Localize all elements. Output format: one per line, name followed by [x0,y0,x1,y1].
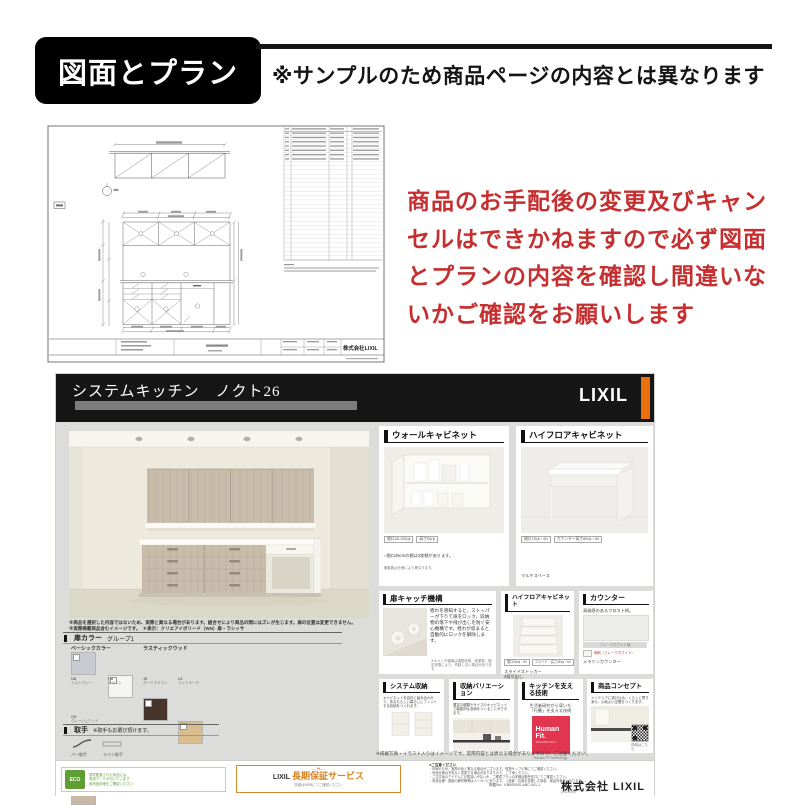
door-color-group: グループ1 [107,634,134,643]
swatch-label: H8 ホワイト [108,676,122,686]
storage-body: キャビネットを自在に組み合わせて、あなたらしい暮らしにフィットする収納をつくれま… [383,696,440,709]
group-basic-label: ベーシックカラー [71,645,111,652]
reference-label [114,189,119,191]
swatch-dark-brown [143,698,168,721]
panel-highfloor-small: ハイフロアキャビネット 間口45㎝・60 スライド・高さ45㎝・60 スライドス… [501,591,574,674]
doc-number: 掲載No：KB000000-ABC-001-1 [489,783,540,788]
size-tag: 間口75㎝・80 [521,536,551,544]
door-catch-note: ※キャッチ機構は振動状態、荷重物、固定状態により、作動しない場合があります。 [431,659,492,672]
warning-line: とプランの内容を確認し間違いな [407,258,779,296]
warning-line: 商品のお手配後の変更及びキャン [407,183,779,221]
swatch-name: グレージュウッド [71,719,99,724]
size-tag: 高さ50㎝ [416,536,438,544]
size-tag: カウンター高さ85㎝・80 [554,536,603,544]
swatch-label: N8 ミストグレー [71,676,92,686]
page-title: 図面とプラン [35,37,261,104]
panel-counter: カウンター 高級感のあるフロスト柄。 フレークホワイト柄 柄例（フレークホワイト… [579,591,653,674]
panel-wall-cabinet: ウォールキャビネット 間口45-105㎝ 高さ50㎝ ○間口45cmの棚は2枚棚… [379,426,509,586]
drawing-company: 株式会社LIXIL [343,344,378,352]
panel-storage-variation: 収納バリエーション 豊富な種類やサイズのキャビネットで機能的な収納をつくることが… [449,679,514,753]
eco-line: 各商品詳細をご確認ください [89,782,133,786]
eco-badge-box: ECO 環境配慮された商品には 専用マークが付いています 各商品詳細をご確認くだ… [61,767,226,792]
swatch-name: ダークブラウン [143,681,168,686]
panel-technology: キッチンを支える技術 生活者研究から導いた 「行動」を支える技術 Human F… [518,679,583,753]
panel-title: ハイフロアキャビネット [505,594,570,612]
counter-body: 高級感のあるフロスト柄。 [583,608,649,613]
handle-option-1: バー取手 [71,752,87,758]
panel-system-storage: システム収納 キャビネットを自在に組み合わせて、あなたらしい暮らしにフィットする… [379,679,444,753]
panel-concept: 商品コンセプト インテリアに溶け込み、くらしに寄り添う。心地よい空間をつくります… [587,679,653,753]
humanfit-logo: Human Fit. TECHNOLOGY [532,716,570,754]
slide-stocker-photo [513,615,563,657]
door-color-heading: 扉カラー [74,633,102,643]
highfloor-photo [521,447,648,533]
section-marker [64,727,67,734]
handle-options-graphic [71,737,131,751]
handle-heading: 取手 [74,725,88,735]
line-handle-icon [103,742,121,746]
highfloor-caption: マルチスペース [521,573,648,578]
wall-cabinet-tags: 間口45-105㎝ 高さ50㎝ [384,536,504,544]
slide-stocker-tags: 間口45㎝・60 スライド・高さ45㎝・60 [504,659,571,667]
variation-photo [453,718,510,754]
sample-disclaimer: ※サンプルのため商品ページの内容とは異なります [272,60,765,90]
door-catch-body: 揺れを感知すると、ストッパーが下りて扉をロック。収納物の落下や飛び出しを防ぐ安心… [430,608,492,656]
render-note-line: ※実際掲載商品含むイメージです。 ＊表示：クリエアイボリード（WN）扉・ラシッサ [69,626,381,632]
catalog-body: ※商品を選択した内容ではないため、実際と異なる場合があります。組合せにより商品の… [56,422,654,760]
technology-line: 生活者研究から導いた [522,703,579,708]
section-marker [64,635,67,642]
panel-title: カウンター [583,594,649,605]
panel-title: システム収納 [383,682,440,693]
door-catch-photo [383,608,427,656]
highfloor-tags: 間口75㎝・80 カウンター高さ85㎝・80 [521,536,648,544]
swatch-checkbox [73,654,80,661]
panel-title: キッチンを支える技術 [522,682,579,700]
wall-cabinet-photo [384,447,504,533]
swatch-checkbox [145,700,152,707]
swatch-label: G8 グレージュウッド [71,714,99,724]
counter-chip [583,650,592,657]
qr-code [632,725,648,741]
warranty-brand: LIXIL [273,774,290,781]
concept-photo [591,706,649,742]
panel-title: ハイフロアキャビネット [521,430,648,443]
size-tag: スライド・高さ45㎝・60 [532,659,574,667]
swatch-name: ミストグレー [71,681,92,686]
swatch-label: J8 ダークブラウン [143,676,168,686]
render-base-cabinet [129,539,329,606]
handle-header: 取手 ※取手もお選び頂けます。 [63,724,219,736]
size-tag: 間口45-105㎝ [384,536,413,544]
panel-title: 商品コンセプト [591,682,649,693]
storage-thumbnails [390,712,434,736]
variation-body: 豊富な種類やサイズのキャビネットで機能的な収納をつくることができます。 [453,703,510,716]
catalog-title: システムキッチン ノクト26 [72,380,281,401]
render-note-line: ※商品を選択した内容ではないため、実際と異なる場合があります。組合せにより商品の… [69,620,381,626]
door-catch-content: 揺れを感知すると、ストッパーが下りて扉をロック。収納物の落下や飛び出しを防ぐ安心… [383,608,492,656]
warning-line: いかご確認をお願いします [407,296,779,334]
parts-table [284,127,382,272]
humanfit-logo-text: Human Fit. [536,726,570,741]
catalog-title-underline [75,401,357,410]
handle-note: ※取手もお選び頂けます。 [93,727,152,734]
counter-chip-note: 柄例（フレークホワイト） [594,651,635,655]
catalog-header-bar: システムキッチン ノクト26 LIXIL [56,374,654,422]
counter-chip-row: 柄例（フレークホワイト） [583,650,649,657]
technology-body: 生活者研究から導いた 「行動」を支える技術 [522,703,579,713]
panel-door-catch: 扉キャッチ機構 揺れを感知すると、ストッパーが下りて扉をロック。収納物の落下や飛… [379,591,496,674]
humanfit-logo-sub: TECHNOLOGY [536,741,557,744]
swatch-mist-gray [71,652,96,675]
warning-line: セルはできかねますので必ず図面 [407,221,779,259]
swatch-label: L8 ライトオーク [178,676,199,686]
page-title-text: 図面とプラン [58,50,238,92]
panel-title: 収納バリエーション [453,682,510,700]
size-tag: 間口45㎝・60 [504,659,530,667]
door-color-header: 扉カラー グループ1 [63,632,342,644]
kitchen-render [69,431,369,618]
lixil-logo: LIXIL [579,385,628,406]
bar-handle-icon [73,740,91,747]
accent-stripe [641,377,650,419]
cancellation-warning: 商品のお手配後の変更及びキャン セルはできかねますので必ず図面 とプランの内容を… [407,183,779,333]
doc-sub: (2023MM) [561,790,576,794]
qr-caption: 詳細はこちら [631,743,649,751]
catalog-page: システムキッチン ノクト26 LIXIL [55,373,655,796]
plan-dim-text [156,141,182,143]
render-disclaimer: ※商品を選択した内容ではないため、実際と異なる場合があります。組合せにより商品の… [69,620,381,631]
catalog-footer: ECO 環境配慮された商品には 専用マークが付いています 各商品詳細をご確認くだ… [56,760,654,796]
panel-title: ウォールキャビネット [384,430,504,443]
frost-pattern-image [583,615,649,641]
eco-text: 環境配慮された商品には 専用マークが付いています 各商品詳細をご確認ください [89,773,133,786]
group-rustic-label: ラスティックウッド [143,645,188,652]
frost-label-strip: フレークホワイト柄 [583,642,647,648]
warranty-sub: 詳細はWEBにてご確認ください [237,783,400,788]
panel-highfloor-cabinet: ハイフロアキャビネット 間口75㎝・80 カウンター高さ85㎝・80 マルチスペ… [516,426,653,586]
frost-label: フレークホワイト柄 [600,643,631,647]
catalog-footer-note: ※掲載写真・イラスト入りはイメージです。実際内容とは異なる場合がありますので、ご… [376,751,590,757]
handle-option-2: ライン取手 [103,752,123,758]
warranty-text: 長期保証サービス [292,771,364,781]
panel-title: 扉キャッチ機構 [383,594,492,605]
concept-body: インテリアに溶け込み、くらしに寄り添う。心地よい空間をつくります。 [591,696,649,704]
wall-cabinet-note: ○間口45cmの棚は2枚棚があります。 [384,553,504,558]
counter-caption: メラミンカウンター [583,659,649,664]
render-wall-cabinet [145,469,316,531]
swatch-name: ライトオーク [178,681,199,686]
technology-line: 「行動」を支える技術 [522,708,579,713]
technical-drawing: 株式会社LIXIL [46,124,386,364]
slide-stocker-caption: スライドストッカー 4段引出し [504,669,571,679]
warranty-box: ―❖― LIXIL長期保証サービス 詳細はWEBにてご確認ください [236,765,401,793]
warranty-label: LIXIL長期保証サービス [237,771,400,783]
eco-badge: ECO [65,770,85,789]
swatch-name: ホワイト [108,681,122,686]
wall-cabinet-note2: 棚板数は仕様により異なります。 [384,566,504,570]
header-rule [256,44,772,49]
